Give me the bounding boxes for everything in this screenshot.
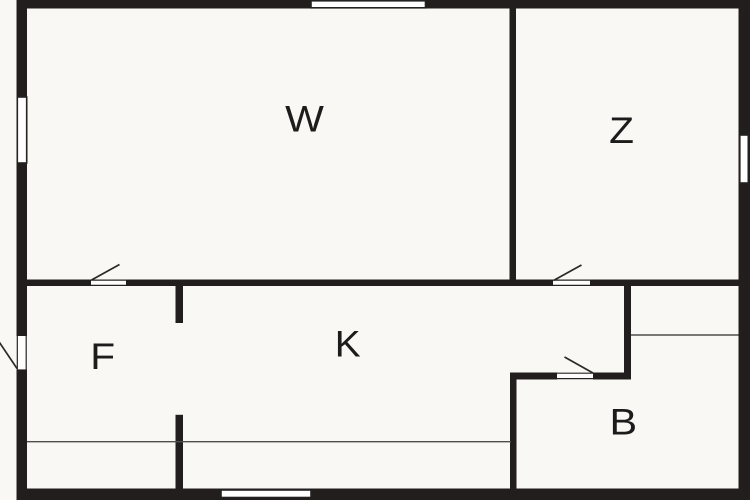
svg-text:B: B [609, 402, 637, 443]
svg-text:K: K [335, 324, 361, 365]
svg-text:W: W [285, 99, 324, 140]
svg-text:Z: Z [609, 111, 634, 152]
svg-text:F: F [90, 336, 115, 377]
